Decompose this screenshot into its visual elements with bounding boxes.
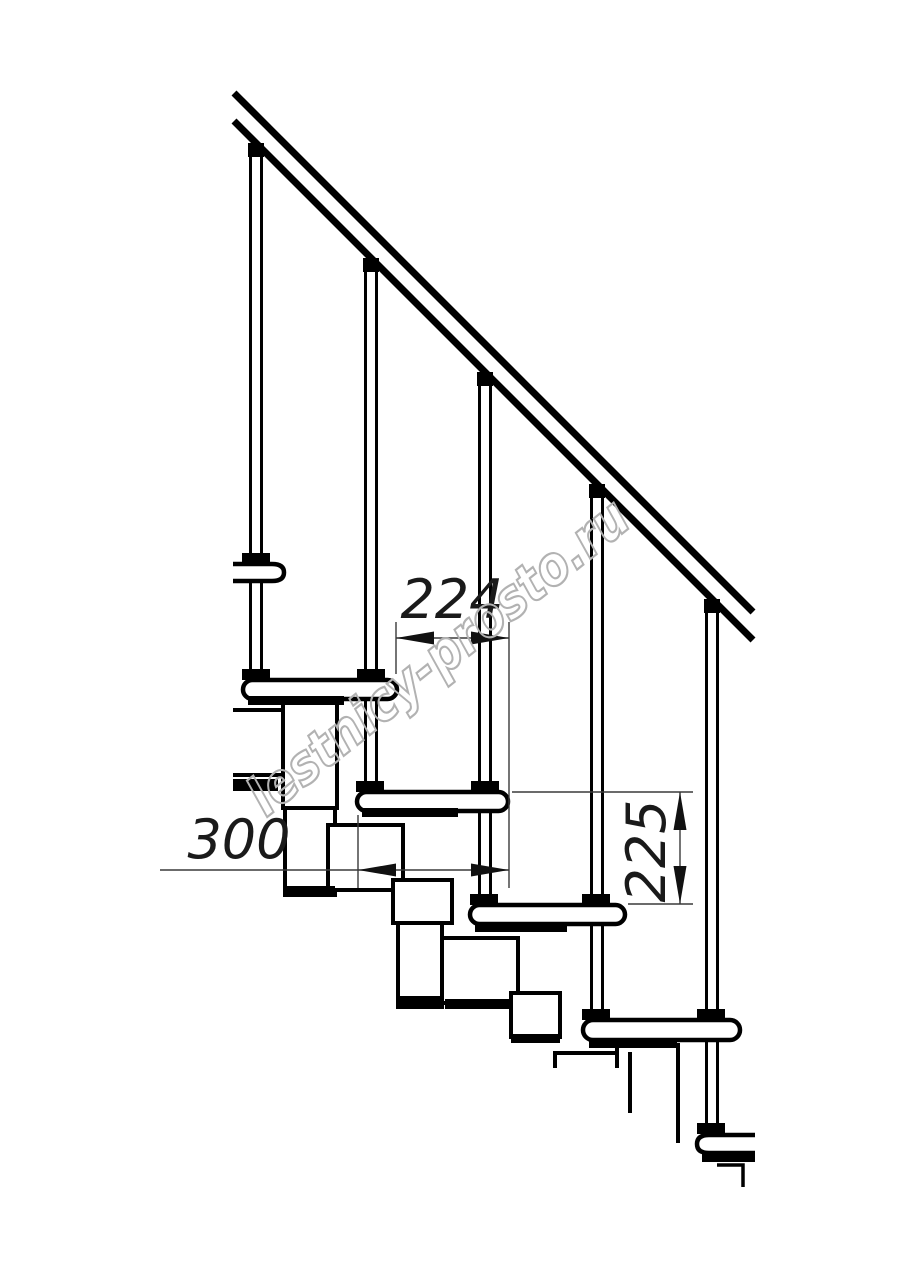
handrail-bottom-line [234, 121, 753, 640]
rail-connector-icon [704, 599, 720, 613]
rail-connector-icon [363, 258, 379, 272]
tread-1 [233, 564, 284, 581]
baluster-collar [582, 1009, 610, 1020]
baluster-collar [356, 781, 384, 792]
handrail-top-line [234, 93, 753, 612]
module-column [511, 993, 560, 1037]
module-base-band [398, 996, 442, 1006]
dim-label-225: 225 [615, 799, 678, 902]
module-base-band [511, 1034, 560, 1043]
tread-6 [697, 1135, 755, 1153]
baluster-collar [471, 781, 499, 792]
module-partial-outline [555, 1043, 678, 1143]
baluster-1 [251, 155, 262, 673]
module-box [442, 938, 518, 1003]
drawing-canvas: 224 300 225 lestnicy-prosto.ru [0, 0, 914, 1280]
tread-4 [470, 905, 625, 924]
module-column [393, 880, 452, 923]
handrail [234, 93, 753, 640]
baluster-5 [707, 613, 718, 1126]
rail-connectors [248, 143, 720, 613]
tread-5 [583, 1020, 740, 1040]
baluster-4 [592, 498, 603, 1012]
staircase-technical-drawing: 224 300 225 lestnicy-prosto.ru [0, 0, 914, 1280]
rail-connector-icon [248, 143, 264, 157]
baluster-collar [242, 669, 270, 680]
bottom-bracket-outline [717, 1165, 743, 1187]
module-column [398, 923, 442, 1007]
baluster-collar [697, 1009, 725, 1020]
tread-mount-pad [589, 1038, 677, 1048]
tread-mount-pad [362, 808, 458, 817]
rail-connector-icon [477, 372, 493, 386]
baluster-collar [470, 894, 498, 905]
watermark: lestnicy-prosto.ru [235, 486, 642, 828]
baluster-collar [697, 1123, 725, 1134]
baluster-collar [242, 553, 270, 564]
module-base-band [445, 999, 513, 1009]
tread-mount-pad [475, 922, 567, 932]
tread-mount-pad [702, 1151, 755, 1162]
baluster-collar [582, 894, 610, 905]
module-base-band [285, 886, 335, 896]
